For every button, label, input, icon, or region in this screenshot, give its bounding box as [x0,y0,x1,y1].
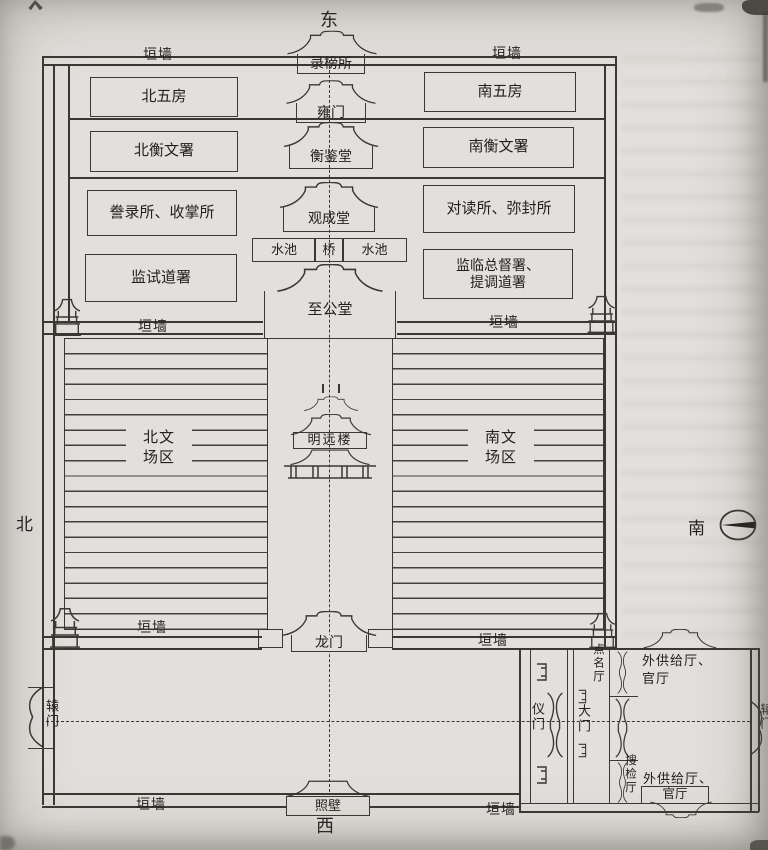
wall-label-top-left: 垣墙 [143,44,173,64]
office-transcription: 誊录所、收掌所 [87,190,237,236]
exam-area-north-line2: 场区 [143,449,175,466]
building-hengjian-hall: 衡鉴堂 [289,146,373,169]
office-south-hengwen: 南衡文署 [423,127,574,168]
label-east: 东 [320,6,339,32]
wall-label-mid-left: 垣墙 [138,316,168,336]
yi-gate-bracket-top [534,661,550,683]
building-guancheng-hall: 观成堂 [283,207,375,232]
exam-area-north-line1: 北文 [143,429,175,446]
wall-label-top-right: 垣墙 [492,43,522,63]
exam-cells-north [64,338,268,630]
mingyuan-base [282,464,378,480]
bottom-wall-b [42,806,519,808]
annex-middle-gate-shape [610,698,635,758]
office-column-line [68,64,70,322]
building-record-hall: 录榜所 [297,54,365,74]
pool-left-box: 水池 [252,238,316,262]
wall-label-mid-right: 垣墙 [489,312,519,332]
label-north: 北 [16,510,34,535]
wall-right-inner [604,64,606,648]
building-dragon-gate: 龙门 [291,635,367,652]
yi-gate-shape [544,689,566,761]
exam-area-south-line2: 场区 [485,449,517,466]
search-hall-label: 搜检厅 [622,754,638,795]
exam-area-south-label: 南文 场区 [468,426,534,469]
office-proofread-seal: 对读所、弥封所 [423,185,575,233]
yi-gate-bracket-bottom [534,764,550,786]
page-mark-top-left [26,0,45,11]
annex-strip-line-1 [567,648,568,804]
yong-gate-roof [285,80,377,105]
supply-hall-top-line1: 外供给厅、 [642,653,712,668]
record-hall-roof [286,30,378,56]
yuan-gate-left-tick-bottom [28,748,55,749]
office-supervisor-line2: 提调道署 [470,274,526,292]
page-mark-top-center [694,3,724,12]
roll-call-hall-label: 点名厅 [590,643,606,684]
bridge-box: 桥 [314,238,344,262]
exam-area-north-label: 北文 场区 [126,426,192,469]
annex-wall-left-outer [519,648,521,812]
compass-needle-icon [716,508,760,542]
building-zhigong-hall: 至公堂 [264,291,396,339]
office-north-hengwen: 北衡文署 [90,131,238,172]
main-gate-bracket-bottom [576,742,589,759]
supply-hall-top-label: 外供给厅、 官厅 [642,652,738,687]
building-yong-gate: 雍门 [296,103,366,123]
label-south: 南 [688,514,706,539]
office-jianshi-dao: 监试道署 [85,254,237,302]
page-bleedthrough-texture [622,56,762,642]
pool-right-box: 水池 [342,238,407,262]
wall-right-outer [615,56,617,648]
wall-label-bottom-left: 垣墙 [136,794,166,814]
supply-hall-bottom-roof [637,801,725,818]
examination-compound-diagram: 东 西 北 南 垣墙 垣墙 垣墙 垣墙 垣墙 垣墙 垣墙 垣墙 北五房 北衡文署… [0,0,768,850]
page-edge-right [763,12,768,82]
page-mark-bottom-right [750,840,768,850]
yi-gate-label: 仪门 [528,702,547,732]
main-gate-label: 大门 [574,704,593,734]
page-mark-bottom-left [0,836,15,850]
wall-left-inner [53,64,55,805]
corner-tower-mid-left [49,297,85,337]
yuan-gate-right-label: 辕门 [758,703,768,731]
office-north-five-rooms: 北五房 [90,77,238,117]
mingyuan-roof-top [303,392,359,416]
supply-hall-top-line2: 官厅 [642,671,670,686]
exam-area-south-line1: 南文 [485,429,517,446]
zhigong-hall-roof [256,264,404,293]
yuan-gate-left-tick-top [28,687,55,688]
dragon-gate-roof [279,611,379,637]
page-mark-top-right [742,0,768,15]
guancheng-hall-roof [270,182,388,209]
exam-cells-south [392,338,604,630]
office-supervisor-line1: 监临总督署、 [456,257,540,275]
building-screen-wall: 照壁 [286,796,370,816]
wall-label-bottom-right: 垣墙 [486,799,516,819]
wall-label-low-right: 垣墙 [478,630,508,650]
office-south-five-rooms: 南五房 [424,72,576,112]
hengjian-hall-roof [279,122,383,148]
annex-strip-tick-top [610,696,638,697]
supply-hall-bottom-line1: 外供给厅、 [643,768,713,787]
corner-tower-mid-right [584,294,619,334]
entrance-axis-dashed-line [46,721,750,722]
band-separator-2 [68,177,605,179]
roll-call-gate-shape [612,651,633,694]
yuan-gate-left-label: 辕门 [42,699,61,729]
supply-hall-top-roof [635,629,725,649]
building-mingyuan-tower: 明远楼 [293,432,367,449]
office-supervisor: 监临总督署、 提调道署 [423,249,573,299]
main-gate-bracket-top [576,688,589,705]
